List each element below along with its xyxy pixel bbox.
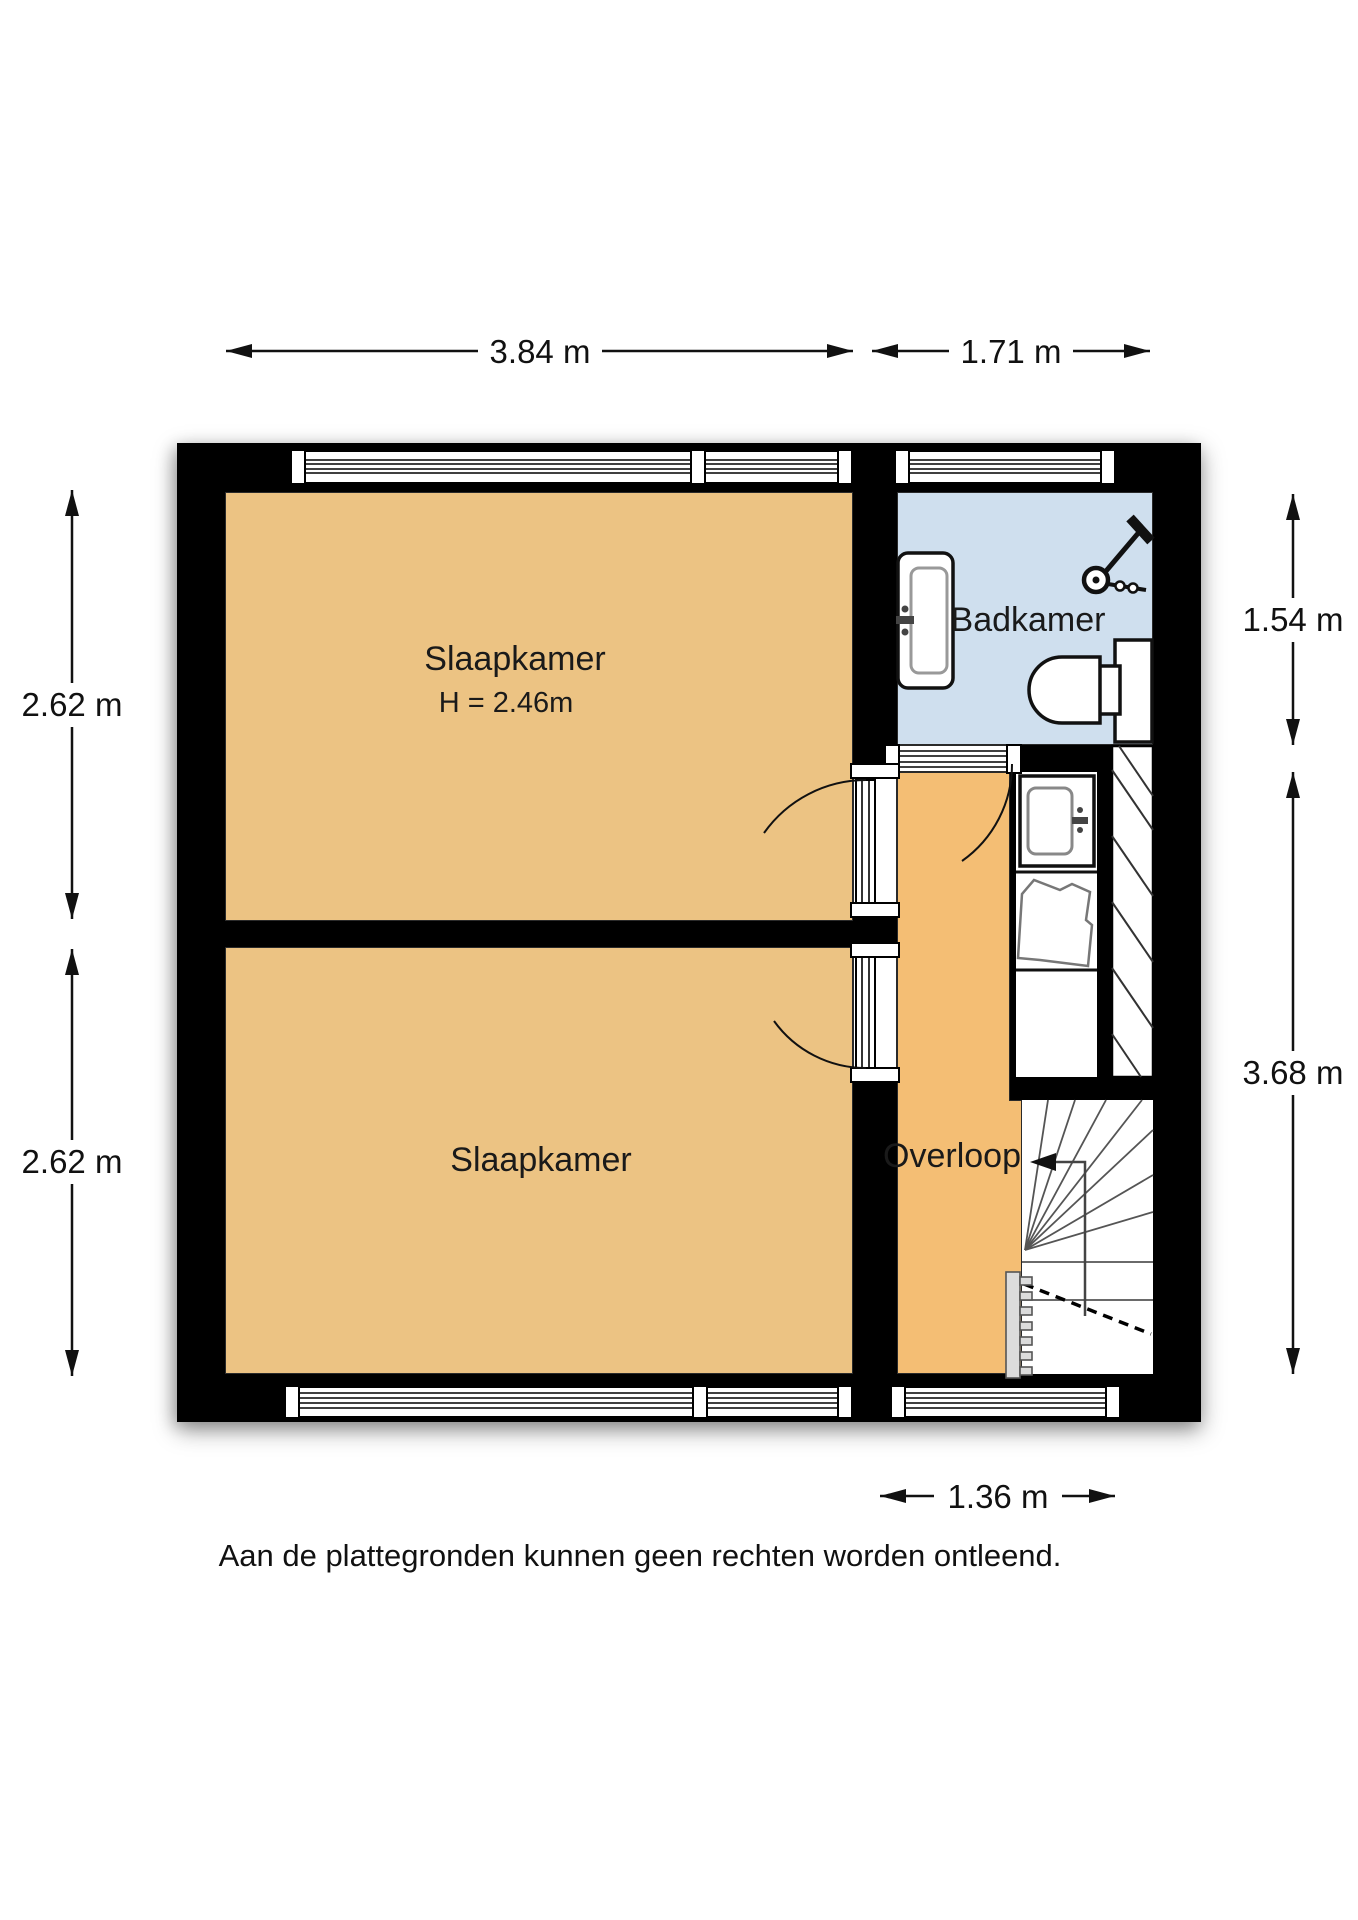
dim-right-bathroom-depth: 1.54 m — [1243, 601, 1344, 638]
window-mullion — [691, 450, 705, 484]
wall-closet-right — [1097, 745, 1112, 1077]
window-cap — [891, 1386, 905, 1418]
window-cap — [838, 1386, 852, 1418]
door-jamb — [851, 1068, 899, 1082]
door-jamb — [851, 943, 899, 957]
closet-area — [1016, 746, 1153, 1077]
wall-middle-upper — [853, 492, 897, 773]
wall-middle-lower — [853, 1077, 897, 1374]
washbasin-faucet-dot — [1077, 827, 1083, 833]
label-ceiling-height: H = 2.46m — [439, 687, 574, 719]
wall-closet-bottom — [1010, 1077, 1153, 1100]
toilet-icon — [1029, 657, 1100, 723]
sink-faucet-dot — [902, 606, 909, 613]
window-cap — [895, 450, 909, 484]
label-slaapkamer-1: Slaapkamer — [424, 640, 605, 678]
window-cap — [1106, 1386, 1120, 1418]
label-badkamer: Badkamer — [951, 601, 1106, 639]
dim-left-bedroom1-depth: 2.62 m — [22, 686, 123, 723]
dim-left-bedroom2-depth: 2.62 m — [22, 1143, 123, 1180]
window-cap — [838, 450, 852, 484]
disclaimer-text: Aan de plattegronden kunnen geen rechten… — [219, 1538, 1062, 1573]
sink-faucet-dot — [902, 629, 909, 636]
boiler-outline-icon — [1018, 880, 1092, 966]
sink-faucet — [896, 616, 914, 624]
dim-top-bedroom-width: 3.84 m — [490, 333, 591, 370]
dim-right-landing-depth: 3.68 m — [1243, 1054, 1344, 1091]
window-bedroom1 — [298, 452, 845, 482]
door-slaapkamer1-leaf — [856, 780, 875, 903]
label-overloop: Overloop — [883, 1137, 1021, 1175]
door-jamb — [851, 903, 899, 917]
floor-overloop — [897, 772, 1022, 1374]
window-mullion — [693, 1386, 707, 1418]
dim-top-bathroom-width: 1.71 m — [961, 333, 1062, 370]
door-jamb — [851, 764, 899, 778]
washbasin-faucet-dot — [1077, 807, 1083, 813]
door-jamb — [1007, 745, 1021, 773]
window-cap — [285, 1386, 299, 1418]
shower-bead — [1129, 584, 1138, 593]
washbasin-faucet — [1072, 817, 1088, 824]
window-badkamer — [899, 452, 1108, 482]
floorplan-page: 3.84 m 1.71 m 2.62 m 2.62 m 1.54 m — [0, 0, 1358, 1920]
window-cap — [291, 450, 305, 484]
floorplan-svg: 3.84 m 1.71 m 2.62 m 2.62 m 1.54 m — [0, 0, 1358, 1920]
wall-right — [1153, 443, 1201, 1422]
wall-bathroom-bottom — [1012, 745, 1110, 772]
dim-bottom-landing-window: 1.36 m — [948, 1478, 1049, 1515]
label-slaapkamer-2: Slaapkamer — [450, 1141, 631, 1179]
shower-bead — [1116, 582, 1125, 591]
shower-head-dot — [1093, 577, 1100, 584]
window-cap — [1101, 450, 1115, 484]
wall-bedroom-divider — [225, 921, 855, 947]
wall-closet-left — [1010, 772, 1016, 1077]
door-slaapkamer2-leaf — [856, 957, 875, 1068]
wall-left — [177, 443, 225, 1422]
